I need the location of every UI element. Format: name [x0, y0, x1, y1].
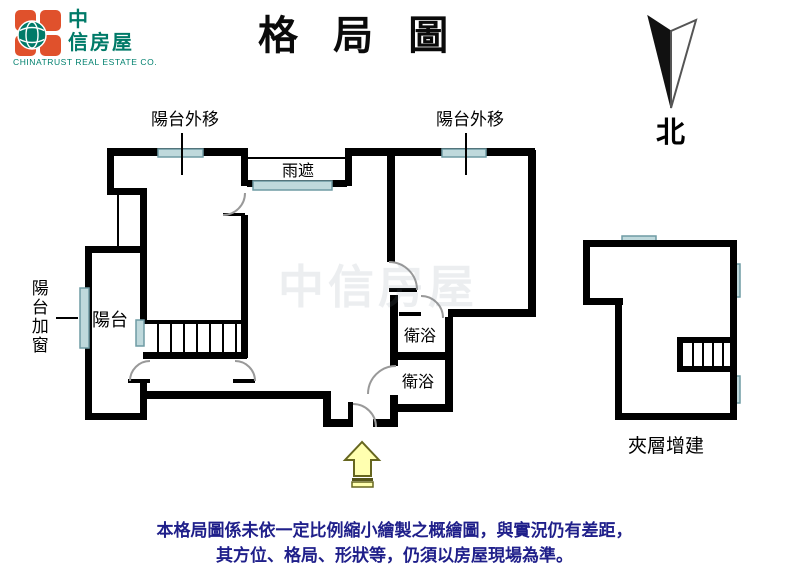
wall [142, 391, 327, 399]
stairs-tread [157, 324, 159, 352]
wall [140, 190, 147, 323]
entrance-arrow-icon [345, 442, 379, 487]
floorplan-page: 中 信房屋 CHINATRUST REAL ESTATE CO. 格 局 圖 北 [0, 0, 789, 579]
balcony-wall [85, 246, 147, 253]
wall [241, 215, 248, 358]
label-balcony: 陽台 [92, 311, 128, 331]
door-arc [130, 361, 150, 381]
stairs-tread [209, 324, 211, 352]
wall [583, 240, 737, 247]
stairs-edge [143, 320, 247, 324]
wall [583, 240, 590, 305]
pointer-line [181, 133, 183, 175]
label-rain-shelter: 雨遮 [282, 163, 314, 181]
bathroom-wall [392, 352, 453, 360]
stairs-tread [196, 324, 198, 352]
stairs-edge [677, 366, 733, 372]
stairs-tread [170, 324, 172, 352]
stairs-edge [677, 337, 733, 343]
label-balcony-out-left: 陽台外移 [151, 111, 219, 130]
label-bath-upper: 衛浴 [404, 328, 436, 346]
door-leaf [233, 379, 255, 383]
watermark-text: 中信房屋 [278, 262, 478, 313]
window [158, 149, 203, 157]
window [136, 320, 144, 346]
rain-shelter-bar [253, 181, 332, 190]
bathroom-wall [390, 404, 453, 412]
wall [615, 413, 737, 420]
wall [241, 148, 248, 186]
stairs-tread [712, 343, 714, 366]
disclaimer-line2: 其方位、格局、形狀等，仍須以房屋現場為準。 [0, 541, 789, 566]
main-staircase [143, 320, 247, 359]
pointer-line [465, 133, 467, 175]
pointer-line [56, 317, 78, 319]
wall [387, 150, 395, 262]
balcony-wall [140, 383, 147, 420]
wall [615, 298, 622, 420]
disclaimer-line1: 本格局圖係未依一定比例縮小繪製之概繪圖，與實況仍有差距， [0, 516, 789, 541]
door-leaf [128, 379, 150, 383]
label-balcony-add-window: 陽台加窗 [28, 279, 47, 363]
door-arc [368, 366, 396, 394]
mezzanine-staircase [677, 337, 733, 372]
label-bath-lower: 衛浴 [402, 374, 434, 392]
stairs-tread [692, 343, 694, 366]
wall [107, 148, 114, 195]
stairs-tread [222, 324, 224, 352]
entrance-wall [331, 419, 350, 427]
door-arc [235, 361, 255, 381]
stairs-edge [143, 352, 247, 359]
stairs-edge [677, 337, 683, 372]
entry-door-arc [353, 404, 376, 427]
entrance-wall [323, 391, 331, 427]
lightwell-line [117, 195, 119, 247]
wall [345, 148, 535, 156]
label-mezzanine: 夾層增建 [628, 437, 704, 458]
balcony-wall [85, 413, 147, 420]
bathroom-wall [445, 317, 453, 412]
window [80, 288, 89, 348]
entry-door-leaf [348, 402, 353, 427]
label-balcony-out-right: 陽台外移 [436, 111, 504, 130]
mezzanine-walls [583, 240, 737, 420]
window [442, 149, 486, 157]
door-arc [223, 193, 245, 215]
stairs-tread [183, 324, 185, 352]
wall [528, 150, 536, 317]
stairs-tread [235, 324, 237, 352]
stairs-tread [722, 343, 724, 366]
stairs-tread [702, 343, 704, 366]
canopy-outline [247, 157, 347, 159]
wall [730, 240, 737, 420]
